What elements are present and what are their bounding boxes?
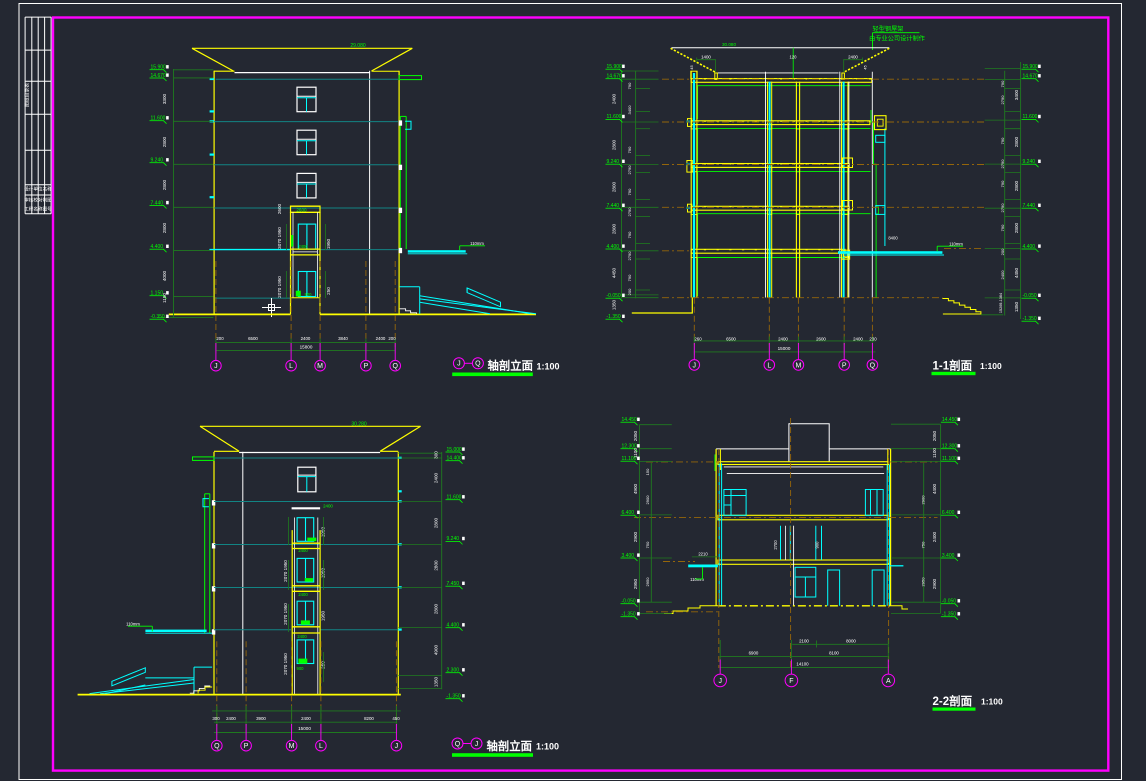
svg-text:2400: 2400 xyxy=(612,93,617,104)
svg-text:3400: 3400 xyxy=(627,105,632,115)
svg-text:审核校对制图: 审核校对制图 xyxy=(24,197,52,204)
svg-text:6500: 6500 xyxy=(726,336,736,341)
svg-text:1950: 1950 xyxy=(321,526,326,537)
svg-text:3070 1950: 3070 1950 xyxy=(277,227,282,249)
svg-text:2400: 2400 xyxy=(376,336,386,341)
svg-text:260: 260 xyxy=(694,336,702,341)
svg-text:2800: 2800 xyxy=(162,136,167,147)
svg-text:120: 120 xyxy=(790,55,798,60)
svg-text:300: 300 xyxy=(212,716,220,721)
svg-text:M: M xyxy=(289,743,295,750)
svg-text:45: 45 xyxy=(689,65,694,70)
svg-text:3400: 3400 xyxy=(1014,89,1019,100)
svg-text:4400: 4400 xyxy=(932,483,937,494)
svg-text:2800: 2800 xyxy=(612,181,617,192)
svg-text:J: J xyxy=(214,363,218,370)
svg-text:2400: 2400 xyxy=(323,504,333,509)
svg-text:2800: 2800 xyxy=(1014,222,1019,233)
svg-text:P: P xyxy=(842,362,847,369)
svg-text:2400: 2400 xyxy=(297,634,307,639)
svg-text:790: 790 xyxy=(627,274,632,281)
svg-text:由专业公司设计制作: 由专业公司设计制作 xyxy=(869,35,925,43)
svg-text:M: M xyxy=(795,362,801,369)
svg-text:250: 250 xyxy=(326,287,331,295)
svg-text:2790: 2790 xyxy=(627,165,632,175)
svg-text:2790: 2790 xyxy=(627,207,632,217)
svg-text:45: 45 xyxy=(863,65,868,70)
svg-text:F: F xyxy=(789,678,793,685)
svg-text:15269-1364: 15269-1364 xyxy=(999,293,1003,313)
svg-text:30.280: 30.280 xyxy=(351,421,367,427)
svg-text:750: 750 xyxy=(645,541,650,548)
svg-text:1350: 1350 xyxy=(1014,301,1019,312)
svg-text:2400: 2400 xyxy=(778,336,788,341)
svg-text:8400: 8400 xyxy=(888,236,898,241)
svg-text:2400: 2400 xyxy=(848,55,858,60)
svg-text:J: J xyxy=(693,362,697,369)
svg-text:2900: 2900 xyxy=(633,531,638,542)
svg-text:3840: 3840 xyxy=(338,336,348,341)
svg-text:2900: 2900 xyxy=(920,495,925,505)
svg-text:L: L xyxy=(767,362,771,369)
svg-text:2-2剖面: 2-2剖面 xyxy=(933,694,973,708)
svg-text:2070 1950: 2070 1950 xyxy=(283,560,288,582)
svg-text:设计单位名称: 设计单位名称 xyxy=(24,186,52,193)
svg-text:4450: 4450 xyxy=(1014,267,1019,278)
svg-text:29.080: 29.080 xyxy=(350,43,366,49)
svg-text:1-1剖面: 1-1剖面 xyxy=(933,358,973,372)
svg-text:2950: 2950 xyxy=(645,577,650,587)
svg-text:15800: 15800 xyxy=(300,345,313,350)
svg-text:J: J xyxy=(475,741,479,748)
svg-text:轴剖立面: 轴剖立面 xyxy=(488,359,534,373)
svg-text:2900: 2900 xyxy=(645,495,650,505)
svg-text:Q: Q xyxy=(392,363,398,370)
svg-text:2400: 2400 xyxy=(298,548,308,553)
svg-text:1100: 1100 xyxy=(932,448,937,458)
svg-text:6500: 6500 xyxy=(248,336,258,341)
svg-text:轴剖立面: 轴剖立面 xyxy=(487,739,533,753)
svg-text:2070 1950: 2070 1950 xyxy=(283,603,288,625)
svg-text:1350: 1350 xyxy=(612,299,617,310)
svg-text:790: 790 xyxy=(627,82,632,89)
svg-text:2800: 2800 xyxy=(1014,180,1019,191)
svg-text:Q: Q xyxy=(214,743,220,750)
svg-text:2800: 2800 xyxy=(1014,136,1019,147)
svg-text:2800: 2800 xyxy=(612,139,617,150)
svg-text:2790: 2790 xyxy=(627,251,632,261)
svg-text:2400: 2400 xyxy=(434,472,439,483)
svg-text:2700: 2700 xyxy=(773,540,778,550)
svg-text:工程名称图号: 工程名称图号 xyxy=(24,206,52,213)
svg-text:Q: Q xyxy=(475,361,481,368)
svg-text:200: 200 xyxy=(1000,248,1005,255)
svg-text:2600: 2600 xyxy=(296,207,307,212)
svg-text:1950: 1950 xyxy=(326,238,331,249)
svg-text:J: J xyxy=(395,743,399,750)
svg-text:1:100: 1:100 xyxy=(536,742,559,752)
svg-text:L: L xyxy=(319,743,323,750)
svg-text:2950: 2950 xyxy=(920,577,925,587)
svg-text:2400: 2400 xyxy=(932,531,937,542)
svg-text:1:100: 1:100 xyxy=(537,361,560,371)
svg-text:1:100: 1:100 xyxy=(980,361,1002,371)
svg-text:4900: 4900 xyxy=(434,644,439,655)
svg-text:P: P xyxy=(244,743,249,750)
svg-text:2790: 2790 xyxy=(1000,159,1005,169)
svg-text:2800: 2800 xyxy=(612,223,617,234)
svg-text:200: 200 xyxy=(216,336,224,341)
svg-text:P: P xyxy=(364,363,369,370)
svg-text:L: L xyxy=(289,363,293,370)
svg-text:450: 450 xyxy=(392,716,400,721)
svg-text:900: 900 xyxy=(815,541,820,549)
svg-text:15000: 15000 xyxy=(298,726,311,731)
svg-text:2400: 2400 xyxy=(226,716,236,721)
svg-text:110mm: 110mm xyxy=(949,241,963,246)
svg-text:8100: 8100 xyxy=(829,651,839,656)
svg-text:790: 790 xyxy=(1000,180,1005,187)
svg-text:790: 790 xyxy=(1000,137,1005,144)
svg-text:图纸目录表: 图纸目录表 xyxy=(24,83,31,107)
svg-text:3900: 3900 xyxy=(256,716,266,721)
svg-text:2800: 2800 xyxy=(162,222,167,233)
svg-text:4450: 4450 xyxy=(612,267,617,278)
svg-text:2600: 2600 xyxy=(277,203,282,214)
svg-text:8200: 8200 xyxy=(364,716,374,721)
svg-text:2800: 2800 xyxy=(162,179,167,190)
svg-text:15000: 15000 xyxy=(778,346,791,351)
svg-text:1950: 1950 xyxy=(321,610,326,621)
svg-text:2050: 2050 xyxy=(932,430,937,441)
svg-text:2800: 2800 xyxy=(434,560,439,571)
svg-text:Q: Q xyxy=(870,362,876,369)
svg-text:2600: 2600 xyxy=(816,336,826,341)
svg-text:200: 200 xyxy=(388,336,396,341)
svg-text:轻型钢屋架: 轻型钢屋架 xyxy=(873,25,904,33)
svg-text:790: 790 xyxy=(627,231,632,238)
svg-text:230: 230 xyxy=(869,336,877,341)
svg-text:2800: 2800 xyxy=(434,517,439,528)
svg-text:150: 150 xyxy=(645,468,650,475)
svg-text:2400: 2400 xyxy=(301,716,311,721)
svg-text:2790: 2790 xyxy=(1000,95,1005,105)
svg-text:1150: 1150 xyxy=(162,293,167,303)
svg-text:3300: 3300 xyxy=(162,93,167,104)
svg-text:Q: Q xyxy=(455,741,461,748)
svg-text:2900: 2900 xyxy=(932,578,937,589)
svg-text:790: 790 xyxy=(627,188,632,195)
svg-text:2210: 2210 xyxy=(698,551,708,556)
svg-text:30.080: 30.080 xyxy=(722,42,736,47)
svg-text:1:100: 1:100 xyxy=(981,697,1003,707)
svg-text:2400: 2400 xyxy=(853,336,863,341)
svg-text:4000: 4000 xyxy=(162,270,167,281)
svg-text:900: 900 xyxy=(297,666,305,671)
svg-text:14100: 14100 xyxy=(796,661,809,666)
svg-text:1100: 1100 xyxy=(633,448,638,458)
svg-text:750: 750 xyxy=(920,541,925,548)
svg-text:110mm: 110mm xyxy=(126,621,140,626)
svg-text:2050: 2050 xyxy=(633,430,638,441)
svg-text:2800: 2800 xyxy=(434,603,439,614)
svg-text:2400: 2400 xyxy=(1000,270,1005,280)
svg-text:M: M xyxy=(317,363,323,370)
svg-text:2070 1950: 2070 1950 xyxy=(283,653,288,675)
svg-text:900: 900 xyxy=(305,292,313,297)
svg-text:J: J xyxy=(457,361,461,368)
svg-text:300: 300 xyxy=(434,451,439,459)
svg-text:2790: 2790 xyxy=(1000,203,1005,213)
svg-text:790: 790 xyxy=(1000,224,1005,231)
svg-text:4900: 4900 xyxy=(633,483,638,494)
svg-text:1950: 1950 xyxy=(321,567,326,578)
svg-text:2400: 2400 xyxy=(301,336,311,341)
svg-text:8000: 8000 xyxy=(846,639,856,644)
svg-text:J: J xyxy=(718,678,722,685)
svg-text:2100: 2100 xyxy=(799,639,809,644)
svg-text:2070 1950: 2070 1950 xyxy=(277,276,282,298)
svg-text:1350: 1350 xyxy=(434,676,439,687)
svg-text:2950: 2950 xyxy=(633,578,638,589)
svg-text:790: 790 xyxy=(627,146,632,153)
svg-text:2400: 2400 xyxy=(298,244,308,249)
svg-text:790: 790 xyxy=(1000,80,1005,87)
svg-text:A: A xyxy=(886,678,891,685)
svg-text:2400: 2400 xyxy=(298,592,308,597)
svg-text:6900: 6900 xyxy=(749,651,759,656)
svg-text:1400: 1400 xyxy=(701,55,711,60)
svg-text:200: 200 xyxy=(627,288,632,295)
